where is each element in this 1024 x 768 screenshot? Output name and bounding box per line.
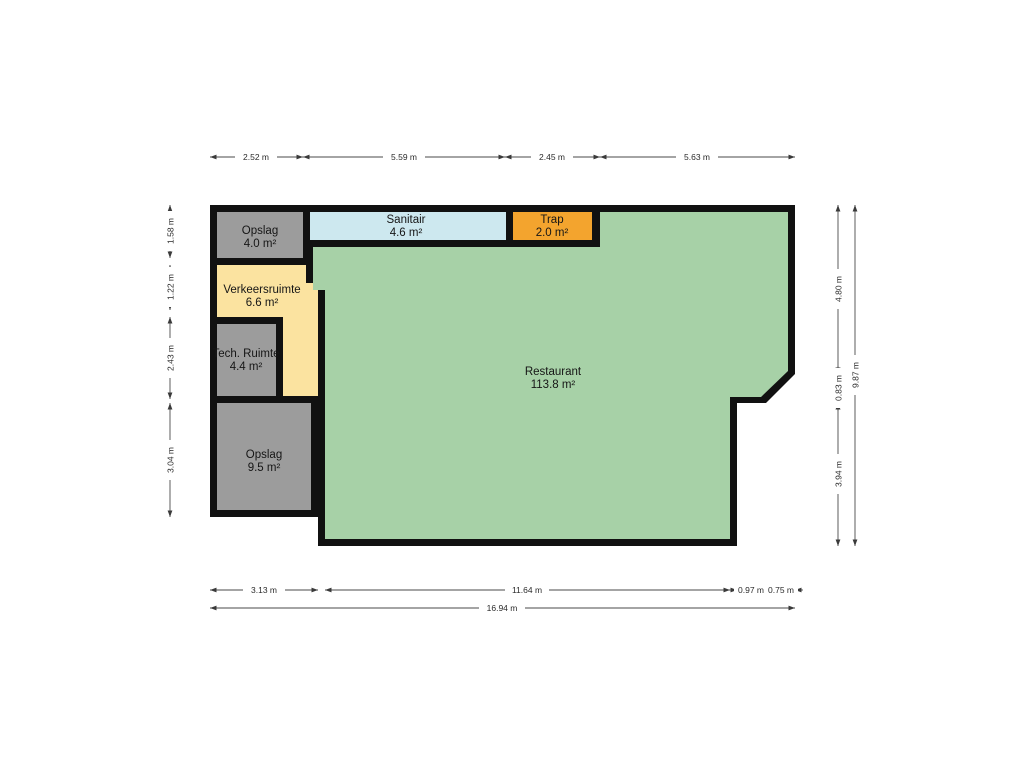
- dim-right-1-label: 4.80 m: [834, 276, 844, 302]
- label-verkeersruimte-area: 6.6 m²: [246, 297, 279, 309]
- label-opslag-large-name: Opslag: [246, 449, 282, 461]
- dim-right-total-label: 9.87 m: [851, 362, 861, 388]
- label-trap-area: 2.0 m²: [536, 227, 569, 239]
- dim-top-4-label: 5.63 m: [684, 152, 710, 162]
- label-opslag-large-area: 9.5 m²: [248, 462, 281, 474]
- label-restaurant-name: Restaurant: [525, 366, 582, 378]
- dim-top-2-label: 5.59 m: [391, 152, 417, 162]
- dim-left-2-label: 1.22 m: [166, 274, 176, 300]
- label-restaurant-area: 113.8 m²: [531, 379, 576, 391]
- label-tech-ruimte-area: 4.4 m²: [230, 361, 263, 373]
- dim-bottom-2-label: 11.64 m: [512, 585, 542, 595]
- dim-left-3-label: 2.43 m: [166, 345, 176, 371]
- label-verkeersruimte-name: Verkeersruimte: [223, 284, 300, 296]
- dim-bottom-total-label: 16.94 m: [487, 603, 518, 613]
- label-opslag-small-area: 4.0 m²: [244, 238, 277, 250]
- floorplan-canvas: Opslag 4.0 m² Sanitair 4.6 m² Trap 2.0 m…: [0, 0, 1024, 768]
- label-opslag-small-name: Opslag: [242, 225, 278, 237]
- label-tech-ruimte-name: Tech. Ruimte: [212, 348, 279, 360]
- room-tech-ruimte: [217, 324, 276, 396]
- dim-top-3-label: 2.45 m: [539, 152, 565, 162]
- label-sanitair-name: Sanitair: [387, 214, 426, 226]
- dim-left-4-label: 3.04 m: [166, 447, 176, 473]
- dim-left-1-label: 1.58 m: [166, 218, 176, 244]
- dim-top-1-label: 2.52 m: [243, 152, 269, 162]
- label-sanitair-area: 4.6 m²: [390, 227, 423, 239]
- dim-bottom-3-label: 0.97 m: [738, 585, 764, 595]
- dim-bottom-1-label: 3.13 m: [251, 585, 277, 595]
- label-trap-name: Trap: [540, 214, 563, 226]
- dim-right-3-label: 3.94 m: [834, 461, 844, 487]
- dim-bottom-4-label: 0.75 m: [768, 585, 794, 595]
- dim-right-2-label: 0.83 m: [834, 375, 844, 401]
